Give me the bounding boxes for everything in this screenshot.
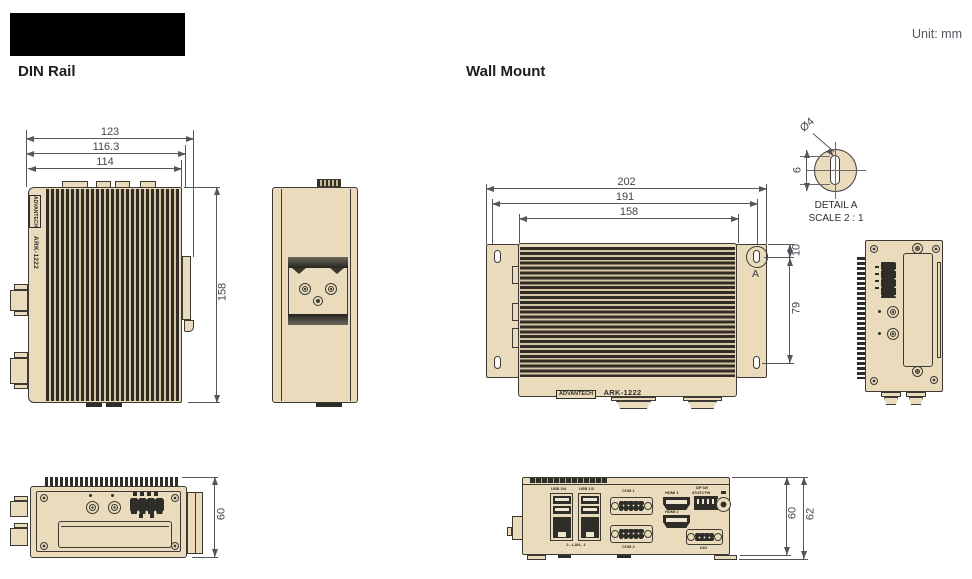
- heatsink-fins: [46, 189, 179, 401]
- indicator-dot: [878, 332, 881, 335]
- heatsink-fins: [520, 247, 735, 377]
- dim-height-label: 60: [217, 508, 228, 520]
- panel-line: [281, 189, 282, 401]
- bottom-connector-edge: [906, 392, 926, 397]
- terminal-pin: [150, 514, 154, 518]
- dim-width-mid: 191: [492, 203, 758, 204]
- antenna-connector-top: [317, 179, 341, 187]
- screw-icon: [171, 494, 179, 502]
- bottom-connector-edge: [884, 397, 898, 405]
- dim-height-label: 158: [218, 283, 229, 301]
- din-clip-hook: [184, 320, 194, 332]
- hdmi2-port: [663, 515, 690, 528]
- mount-hole: [753, 356, 760, 369]
- usb-port: [581, 496, 599, 504]
- side-connector-edge: [14, 311, 28, 316]
- din-clip: [182, 256, 191, 320]
- edge-strip: [937, 262, 941, 358]
- bottom-connector-edge: [909, 397, 923, 405]
- side-connector-edge: [10, 290, 28, 311]
- terminal-block-label: [133, 492, 161, 496]
- screw-icon: [171, 542, 179, 550]
- dio-port: [686, 529, 723, 545]
- detail-marker-label: A: [752, 268, 759, 280]
- dim-height-body-label: 60: [788, 507, 799, 519]
- dim-height-overall-label: 62: [806, 508, 817, 520]
- dim-width-outer: 123: [26, 138, 194, 139]
- foot: [617, 555, 631, 558]
- side-connector-edge: [10, 501, 28, 517]
- ext-line: [192, 557, 218, 558]
- din-plate-hook: [292, 268, 306, 274]
- screw-icon: [932, 245, 940, 253]
- panel-line: [195, 493, 196, 553]
- power-terminal-block: [130, 498, 164, 514]
- dim-width-inner: 114: [28, 168, 182, 169]
- dim-width-inner: 158: [519, 218, 739, 219]
- lan-port: [581, 517, 599, 538]
- screw-icon: [912, 243, 923, 254]
- device-label-vertical: ADVANTECH ARK-1222: [32, 195, 44, 305]
- bracket-foot: [527, 555, 546, 560]
- antenna-hole: [887, 328, 899, 340]
- indicator-dot: [111, 494, 114, 497]
- side-connector-edge: [507, 527, 512, 536]
- screw-icon: [313, 296, 323, 306]
- dim-width-mid: 116.3: [26, 153, 186, 154]
- terminal-pins: [875, 266, 879, 294]
- side-connector-edge: [512, 266, 519, 284]
- slot-cover: [903, 253, 933, 367]
- ext-line: [181, 160, 182, 187]
- usb-right-label: USB 1/2: [579, 487, 594, 492]
- foot: [316, 403, 342, 407]
- usb-port: [553, 506, 571, 514]
- panel-line: [350, 189, 351, 401]
- indicator-dot: [89, 494, 92, 497]
- screw-icon: [40, 542, 48, 550]
- usb-port: [581, 506, 599, 514]
- unit-label: Unit: mm: [912, 27, 962, 41]
- usb-lan-stack: [550, 493, 573, 541]
- dc-power-jack: [716, 497, 731, 512]
- com1-label: COM 1: [622, 489, 635, 494]
- bottom-connector-edge: [683, 397, 722, 401]
- power-symbol: [721, 491, 726, 494]
- dip-switch: [694, 496, 718, 510]
- power-terminal-block: [881, 262, 896, 298]
- device-label: ADVANTECH ARK-1222: [556, 382, 641, 394]
- bottom-connector-edge: [688, 401, 717, 409]
- centerline-h: [806, 170, 866, 171]
- foot: [106, 403, 122, 407]
- ext-line: [762, 363, 794, 364]
- brand-label: ADVANTECH: [29, 195, 42, 228]
- terminal-pin: [139, 514, 143, 518]
- detail-title: DETAIL A: [791, 199, 881, 212]
- screw-icon: [299, 283, 311, 295]
- mount-hole: [494, 250, 501, 263]
- dim-slot-height: [806, 150, 807, 191]
- side-connector-edge: [512, 328, 519, 348]
- brand-label: ADVANTECH: [556, 390, 596, 399]
- bracket-foot: [714, 555, 737, 560]
- foot: [86, 403, 102, 407]
- side-connector-edge: [10, 358, 28, 384]
- screw-icon: [912, 366, 923, 377]
- bottom-connector-edge: [881, 392, 901, 397]
- section-title-wall-mount: Wall Mount: [466, 63, 545, 80]
- detail-scale: SCALE 2 : 1: [791, 212, 881, 225]
- datasheet-dimensions-page: Unit: mm DIN Rail Wall Mount 123 116.3 1…: [0, 0, 972, 579]
- edge-label-strip: [530, 478, 607, 483]
- din-plate-hook: [330, 268, 344, 274]
- panel-line: [523, 484, 729, 485]
- com1-port: [610, 497, 653, 515]
- din-plate-bottom-bar: [288, 314, 348, 325]
- screw-icon: [870, 245, 878, 253]
- slot-cover-line: [61, 526, 169, 527]
- com2-label: COM 2: [622, 545, 635, 550]
- ext-line: [732, 477, 808, 478]
- com2-port: [610, 525, 653, 543]
- dip-label-line1: DIP SW: [696, 486, 708, 490]
- model-label: ARK-1222: [32, 236, 39, 269]
- ext-line: [739, 559, 808, 560]
- bottom-connector-edge: [616, 401, 651, 409]
- lan-port: [553, 517, 571, 538]
- din-plate-top-bar: [288, 257, 348, 268]
- side-connector-edge: [14, 384, 28, 389]
- dim-diameter-label: Ø4: [798, 116, 817, 135]
- mount-hole: [494, 356, 501, 369]
- side-connector-edge: [512, 516, 523, 540]
- bottom-connector-edge: [611, 397, 656, 401]
- foot: [558, 555, 571, 558]
- lan-label: 2 –LAN– 1: [556, 543, 596, 548]
- antenna-hole: [86, 501, 99, 514]
- screw-icon: [930, 376, 938, 384]
- ext-line: [766, 184, 767, 244]
- side-connector-edge: [10, 528, 28, 546]
- centerline-v: [835, 142, 836, 199]
- screw-icon: [870, 377, 878, 385]
- side-connector-edge: [512, 303, 519, 321]
- dim-slot-height-label: 6: [793, 167, 804, 173]
- dim-hole-offset-label: 10: [792, 244, 803, 256]
- model-label: ARK-1222: [604, 388, 642, 397]
- ext-line: [193, 130, 194, 257]
- usb-lan-stack: [578, 493, 601, 541]
- usb-left-label: USB 3/4: [551, 487, 566, 492]
- usb-port: [553, 496, 571, 504]
- screw-icon: [40, 494, 48, 502]
- antenna-hole: [108, 501, 121, 514]
- antenna-hole: [887, 306, 899, 318]
- ext-line: [740, 555, 791, 556]
- hdmi2-label: HDMI 2: [665, 510, 679, 515]
- ext-line: [486, 184, 487, 244]
- dim-width-outer: 202: [486, 188, 767, 189]
- section-title-din-rail: DIN Rail: [18, 63, 76, 80]
- indicator-dot: [878, 310, 881, 313]
- hdmi1-label: HDMI 1: [665, 491, 679, 496]
- redacted-title-block: [10, 13, 185, 56]
- dim-hole-spacing-label: 79: [792, 302, 803, 314]
- dip-label-line2: AT/ATX PW: [692, 491, 710, 495]
- dio-label: DIO: [700, 546, 707, 551]
- screw-icon: [325, 283, 337, 295]
